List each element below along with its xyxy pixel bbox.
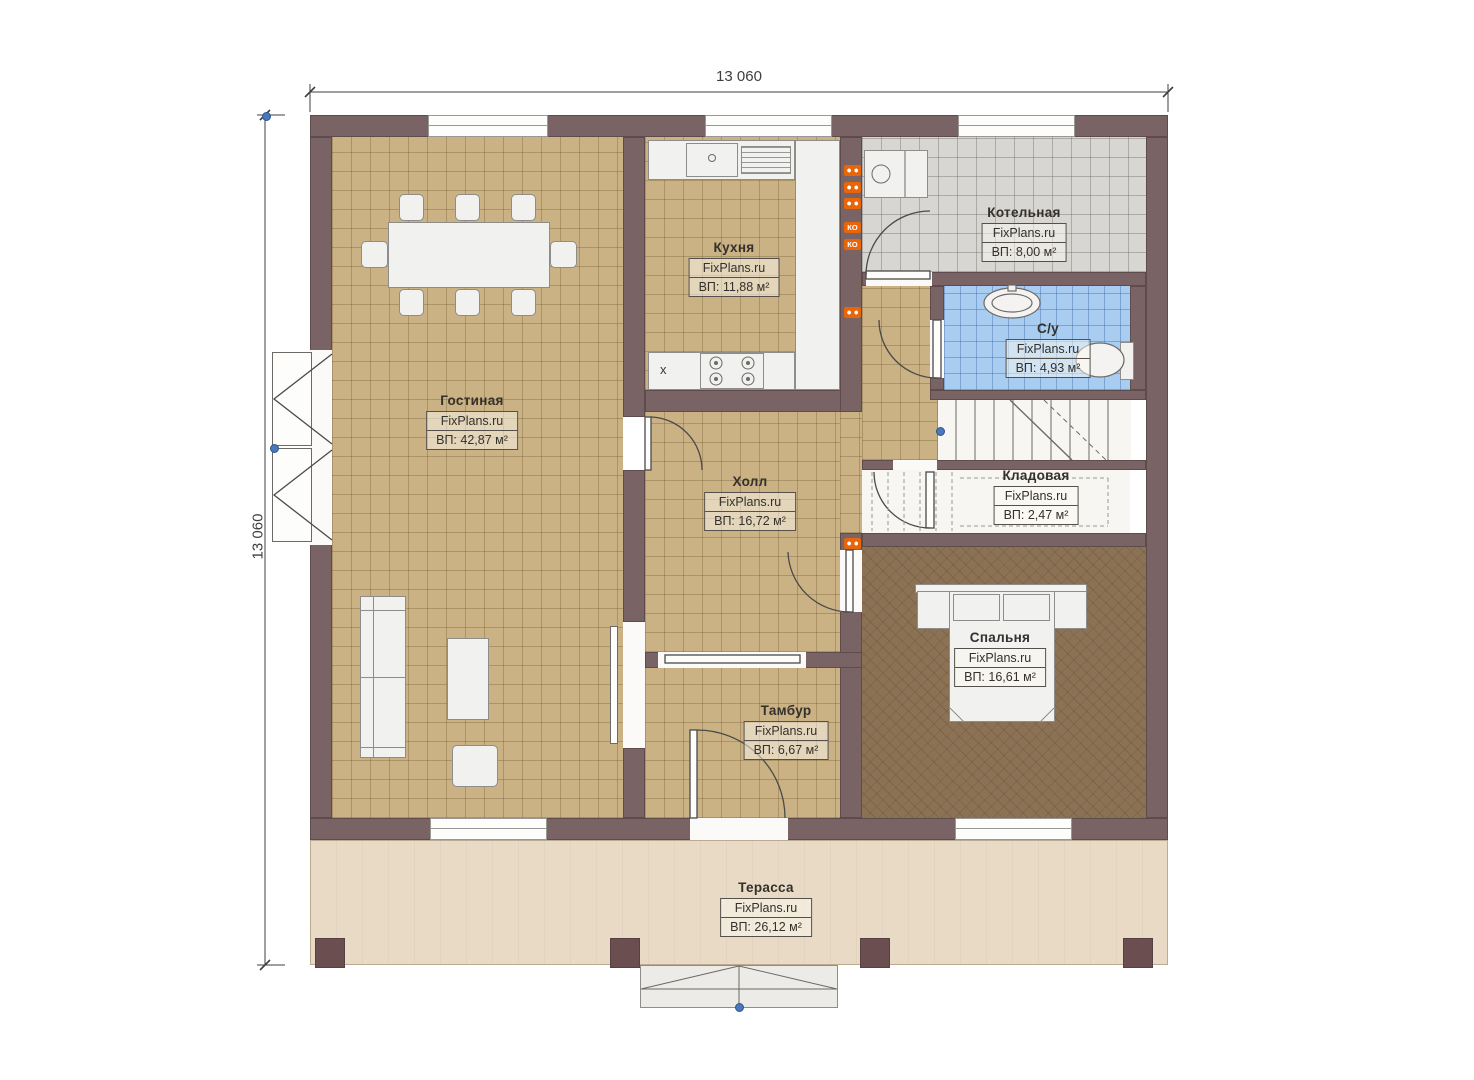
boiler-door-opening (866, 272, 932, 286)
window-bedroom-bottom (955, 818, 1072, 840)
room-label-kitchen: Кухня FixPlans.ru ВП: 11,88 м² (689, 240, 780, 297)
marker-dot (936, 427, 945, 436)
room-name: Спальня (954, 630, 1046, 645)
kitchen-counter-right (795, 140, 840, 390)
pillow-right (1003, 594, 1050, 621)
room-area: ВП: 4,93 м² (1007, 359, 1090, 377)
stairs-area (937, 400, 1131, 460)
wall-kitchen-hall (645, 390, 862, 412)
room-name: Холл (704, 474, 796, 489)
room-label-living: Гостиная FixPlans.ru ВП: 42,87 м² (426, 393, 518, 450)
window-kitchen-top (705, 115, 832, 137)
room-area: ВП: 8,00 м² (983, 243, 1066, 261)
room-name: Терасса (720, 880, 812, 895)
room-name: Кухня (689, 240, 780, 255)
room-name: Тамбур (744, 703, 829, 718)
window-living-top (428, 115, 548, 137)
entry-steps (640, 965, 838, 1008)
room-area: ВП: 16,72 м² (705, 512, 795, 530)
floor-plan: x (0, 0, 1474, 1080)
room-area: ВП: 42,87 м² (427, 431, 517, 449)
room-label-hall: Холл FixPlans.ru ВП: 16,72 м² (704, 474, 796, 531)
wall-living-tambour (623, 748, 645, 818)
dining-chair (511, 194, 536, 221)
dimension-top: 13 060 (310, 68, 1168, 85)
stove (700, 353, 764, 389)
brand-text: FixPlans.ru (995, 487, 1078, 506)
armchair (452, 745, 498, 787)
bedroom-door-opening (840, 550, 862, 612)
room-name: С/у (1006, 321, 1091, 336)
pillow-left (953, 594, 1000, 621)
room-area: ВП: 16,61 м² (955, 668, 1045, 686)
room-name: Кладовая (994, 468, 1079, 483)
brand-text: FixPlans.ru (983, 224, 1066, 243)
sliding-door-leaf-living (610, 626, 618, 744)
wall-bath-stairs (930, 390, 1146, 400)
dining-chair (550, 241, 577, 268)
outlet-icon (844, 198, 861, 209)
room-name: Гостиная (426, 393, 518, 408)
room-label-boiler: Котельная FixPlans.ru ВП: 8,00 м² (982, 205, 1067, 262)
marker-dot (270, 444, 279, 453)
french-door-opening (310, 350, 332, 545)
window-boiler-top (958, 115, 1075, 137)
brand-text: FixPlans.ru (690, 259, 779, 278)
terrace-post-2 (610, 938, 640, 968)
kitchen-sink (686, 143, 738, 177)
corridor-floor (862, 286, 937, 460)
marker-dot (735, 1003, 744, 1012)
hall-floor (645, 412, 840, 652)
stove-symbol: x (660, 362, 667, 377)
wall-storage-bedroom (862, 533, 1146, 547)
nightstand-right (1053, 591, 1087, 629)
hall-corridor-floor (840, 412, 862, 533)
outlet-icon (844, 165, 861, 176)
outlet-ko-icon: КО (844, 222, 861, 233)
marker-dot (262, 112, 271, 121)
room-area: ВП: 11,88 м² (690, 278, 779, 296)
coffee-table (447, 638, 489, 720)
french-door-panel-bottom (272, 448, 312, 542)
front-door-opening (690, 818, 788, 840)
boiler-unit (864, 150, 928, 198)
room-area: ВП: 2,47 м² (995, 506, 1078, 524)
wall-living-hall (623, 470, 645, 622)
dimension-left: 13 060 (250, 497, 267, 577)
room-label-tambour: Тамбур FixPlans.ru ВП: 6,67 м² (744, 703, 829, 760)
nightstand-left (917, 591, 951, 629)
terrace-post-3 (860, 938, 890, 968)
brand-text: FixPlans.ru (427, 412, 517, 431)
french-door-panel-top (272, 352, 312, 446)
terrace-post-4 (1123, 938, 1153, 968)
dining-chair (399, 289, 424, 316)
sliding-opening-living (623, 622, 645, 748)
terrace-post-1 (315, 938, 345, 968)
room-label-bedroom: Спальня FixPlans.ru ВП: 16,61 м² (954, 630, 1046, 687)
brand-text: FixPlans.ru (705, 493, 795, 512)
room-label-terrace: Терасса FixPlans.ru ВП: 26,12 м² (720, 880, 812, 937)
toilet-tank (1120, 342, 1134, 380)
dining-table (388, 222, 550, 288)
outlet-ko-icon: КО (844, 239, 861, 250)
room-area: ВП: 26,12 м² (721, 918, 811, 936)
brand-text: FixPlans.ru (1007, 340, 1090, 359)
wall-living-kitchen (623, 137, 645, 417)
dining-chair (455, 289, 480, 316)
wall-kitchen-right (840, 137, 862, 412)
outlet-icon (844, 538, 861, 549)
room-label-bathroom: С/у FixPlans.ru ВП: 4,93 м² (1006, 321, 1091, 378)
brand-text: FixPlans.ru (955, 649, 1045, 668)
dining-chair (361, 241, 388, 268)
kitchen-drainer (741, 146, 791, 174)
brand-text: FixPlans.ru (745, 722, 828, 741)
dining-chair (399, 194, 424, 221)
room-area: ВП: 6,67 м² (745, 741, 828, 759)
dining-chair (455, 194, 480, 221)
brand-text: FixPlans.ru (721, 899, 811, 918)
outlet-icon (844, 182, 861, 193)
room-name: Котельная (982, 205, 1067, 220)
outlet-icon (844, 307, 861, 318)
dining-chair (511, 289, 536, 316)
window-living-bottom (430, 818, 547, 840)
wall-right (1146, 137, 1168, 818)
storage-door-opening (893, 460, 937, 470)
room-label-storage: Кладовая FixPlans.ru ВП: 2,47 м² (994, 468, 1079, 525)
sofa (360, 596, 406, 758)
bath-door-opening (930, 320, 944, 378)
tambour-opening (658, 652, 806, 668)
